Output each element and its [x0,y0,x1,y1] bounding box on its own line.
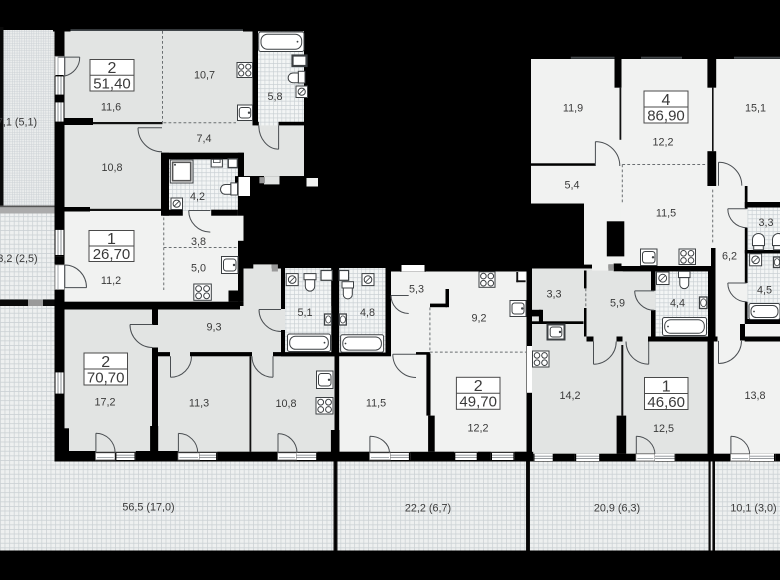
svg-text:3,3: 3,3 [758,217,773,229]
svg-text:10,7: 10,7 [194,70,215,82]
svg-text:1: 1 [662,378,671,395]
svg-text:7,1 (5,1): 7,1 (5,1) [0,117,37,129]
svg-text:13,8: 13,8 [744,390,765,402]
svg-text:10,8: 10,8 [275,398,296,410]
svg-text:5,1: 5,1 [297,307,312,319]
svg-text:10,1 (3,0): 10,1 (3,0) [730,503,776,515]
svg-text:4,8: 4,8 [360,307,375,319]
svg-text:11,9: 11,9 [563,103,583,115]
svg-text:26,70: 26,70 [93,246,131,263]
svg-text:11,2: 11,2 [101,275,121,287]
svg-text:22,2 (6,7): 22,2 (6,7) [405,503,451,515]
svg-text:4,4: 4,4 [670,298,685,310]
svg-text:3,3: 3,3 [546,289,561,301]
svg-text:5,4: 5,4 [564,180,579,192]
svg-text:15,1: 15,1 [745,103,766,115]
svg-text:70,70: 70,70 [87,369,125,386]
svg-text:3,2 (2,5): 3,2 (2,5) [0,253,38,265]
svg-text:2: 2 [101,354,110,371]
svg-text:86,90: 86,90 [647,107,685,124]
svg-text:4,5: 4,5 [757,285,772,297]
svg-text:9,3: 9,3 [206,322,221,334]
svg-text:51,40: 51,40 [93,76,131,93]
svg-text:11,6: 11,6 [101,102,121,114]
svg-text:11,3: 11,3 [189,398,209,410]
svg-text:12,5: 12,5 [653,423,674,435]
svg-text:49,70: 49,70 [459,394,497,411]
svg-text:4: 4 [662,92,671,109]
svg-text:3,8: 3,8 [191,236,206,248]
svg-text:5,8: 5,8 [267,91,282,103]
svg-text:5,0: 5,0 [191,263,206,275]
svg-text:9,2: 9,2 [471,313,486,325]
svg-text:46,60: 46,60 [647,394,685,411]
svg-text:7,4: 7,4 [196,133,211,145]
svg-text:11,5: 11,5 [366,398,386,410]
svg-text:12,2: 12,2 [467,423,488,435]
svg-text:5,3: 5,3 [409,284,424,296]
svg-text:2: 2 [474,378,483,395]
svg-text:20,9 (6,3): 20,9 (6,3) [594,503,640,515]
svg-text:10,8: 10,8 [101,162,122,174]
svg-text:56,5 (17,0): 56,5 (17,0) [122,502,174,514]
svg-text:11,5: 11,5 [656,208,676,220]
svg-text:17,2: 17,2 [94,397,115,409]
svg-text:14,2: 14,2 [559,390,580,402]
svg-text:6,2: 6,2 [722,251,737,263]
svg-text:5,9: 5,9 [610,298,625,310]
svg-text:2: 2 [108,60,117,77]
svg-text:4,2: 4,2 [190,191,205,203]
svg-text:12,2: 12,2 [652,137,673,149]
